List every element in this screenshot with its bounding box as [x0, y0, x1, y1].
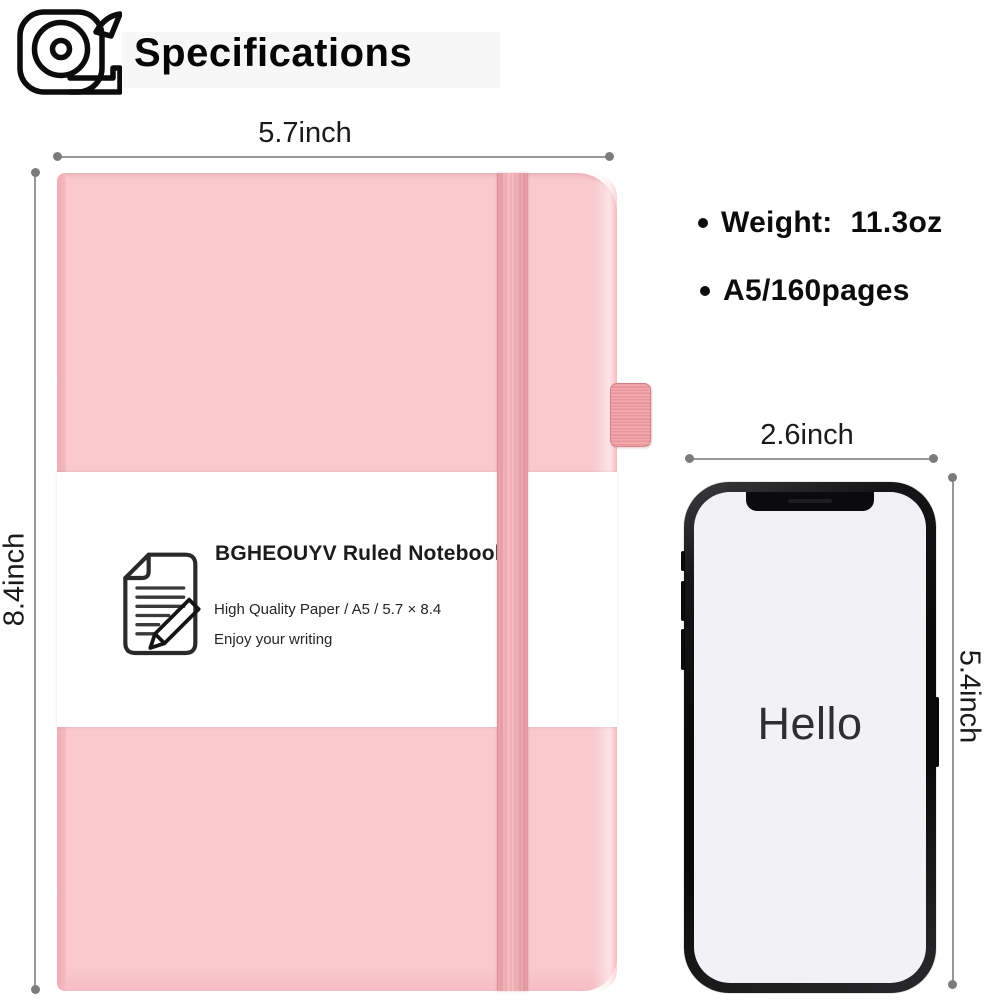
page-title: Specifications — [134, 31, 412, 76]
pen-loop — [610, 383, 651, 447]
dimension-dot — [31, 985, 40, 994]
phone-screen: Hello — [694, 492, 926, 983]
mute-switch — [681, 551, 685, 571]
phone-height-label: 5.4inch — [953, 637, 986, 757]
product-spec-image: Specifications 5.7inch 8.4inch — [0, 0, 991, 1000]
notebook-photo: BGHEOUYV Ruled Notebook High Quality Pap… — [57, 173, 617, 991]
phone-width-label: 2.6inch — [732, 419, 882, 452]
phone-notch — [746, 492, 874, 511]
dimension-dot — [685, 454, 694, 463]
spec-bullet-pages: A5/160pages — [700, 274, 928, 308]
elastic-band — [497, 173, 528, 991]
power-button — [935, 697, 939, 767]
speaker-slit — [788, 499, 832, 503]
dimension-dot — [605, 152, 614, 161]
pages-label: A5/160pages — [723, 274, 910, 308]
notebook-height-label: 8.4inch — [0, 520, 32, 640]
belly-band-label: BGHEOUYV Ruled Notebook High Quality Pap… — [57, 472, 617, 727]
dimension-dot — [53, 152, 62, 161]
phone-height-line — [952, 477, 954, 985]
measuring-tape-icon — [10, 4, 122, 103]
phone-photo: Hello — [684, 482, 936, 993]
volume-up-button — [681, 581, 685, 621]
notebook-tagline: Enjoy your writing — [214, 631, 332, 648]
phone-hello-text: Hello — [694, 698, 926, 750]
notebook-brand-title: BGHEOUYV Ruled Notebook — [215, 542, 507, 566]
dimension-dot — [948, 473, 957, 482]
spec-bullet-weight: Weight: 11.3oz — [698, 206, 942, 240]
notebook-spec-line: High Quality Paper / A5 / 5.7 × 8.4 — [214, 601, 441, 618]
notebook-height-line — [34, 172, 36, 990]
phone-width-line — [688, 458, 934, 460]
weight-value: 11.3oz — [851, 206, 943, 240]
notebook-width-label: 5.7inch — [230, 117, 380, 150]
dimension-dot — [31, 168, 40, 177]
bullet-dot — [698, 218, 708, 228]
notebook-width-line — [57, 156, 610, 158]
document-pencil-icon — [117, 538, 217, 683]
weight-label: Weight: — [721, 206, 833, 240]
bullet-dot — [700, 286, 710, 296]
volume-down-button — [681, 629, 685, 670]
dimension-dot — [929, 454, 938, 463]
dimension-dot — [948, 980, 957, 989]
